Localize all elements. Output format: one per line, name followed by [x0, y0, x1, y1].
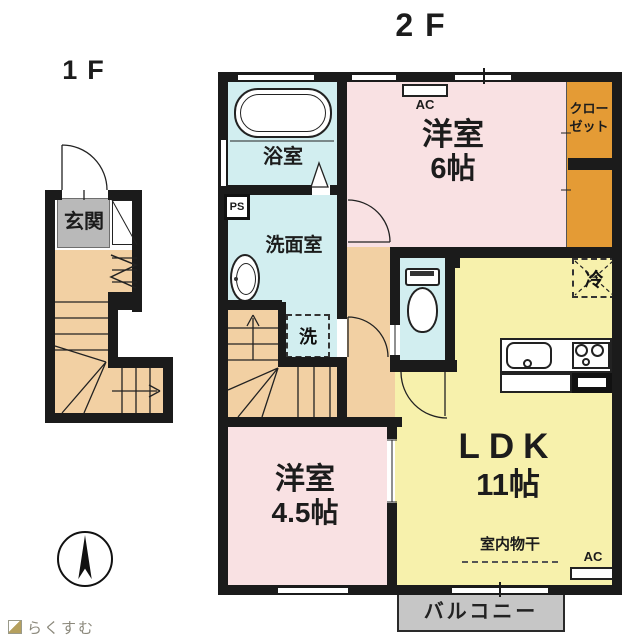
room-west6-size: 6帖: [398, 154, 508, 186]
kitchen-faucet: [523, 359, 532, 368]
closet-label-line2: ゼット: [564, 120, 614, 134]
wall: [337, 72, 347, 427]
refrigerator-label: 冷: [584, 265, 603, 292]
north-arrow-icon: [73, 535, 97, 583]
washbasin-faucet-dot: [234, 277, 238, 281]
wall: [568, 158, 616, 170]
washer-space: 洗: [286, 314, 330, 358]
bathtub: [234, 88, 332, 138]
wall: [397, 360, 457, 372]
wall: [449, 258, 460, 268]
washer-label: 洗: [299, 323, 317, 349]
toilet-bowl: [407, 287, 438, 333]
ac-unit-top: [402, 84, 448, 97]
washbasin-inner: [236, 263, 256, 295]
wall: [218, 417, 402, 427]
stove-burner-left: [575, 344, 588, 357]
ac-unit-bottom: [570, 567, 616, 580]
hall-1f-b: [55, 302, 108, 413]
wall: [278, 357, 347, 367]
window: [238, 73, 314, 82]
closet-label-line1: クロー: [566, 102, 612, 116]
logo-text: らくすむ: [27, 617, 95, 638]
room-west45-name: 洋室: [243, 463, 367, 496]
entrance-label: 玄関: [58, 211, 110, 233]
room-west45-size: 4.5帖: [238, 498, 372, 529]
window-tick: [499, 582, 501, 597]
ldk-size: 11帖: [428, 468, 588, 502]
stove-burner-small: [582, 358, 590, 366]
stove-burner-right: [591, 344, 604, 357]
wall: [387, 427, 397, 439]
window: [278, 586, 348, 595]
entry-door-swing: [62, 145, 107, 200]
logo-icon: [8, 620, 22, 634]
wall: [45, 190, 55, 423]
wall: [390, 247, 400, 325]
ps-box: PS: [224, 194, 250, 220]
stairs-2f-area: [228, 310, 278, 417]
wall: [45, 413, 173, 423]
bath-label: 浴室: [248, 146, 318, 168]
kitchen-counter-low: [500, 373, 572, 393]
washroom-label: 洗面室: [250, 236, 338, 257]
wall: [330, 185, 347, 195]
window: [219, 140, 228, 186]
indoor-drying-line: [462, 561, 558, 563]
room-west6-name: 洋室: [398, 118, 508, 152]
window-tick: [483, 68, 485, 84]
floor-label-2f: 2F: [378, 8, 474, 43]
wall: [612, 72, 622, 595]
wall: [218, 300, 282, 310]
hall-1f-c: [108, 368, 163, 413]
bathtub-inner: [240, 94, 326, 132]
ac-label-bottom: AC: [570, 550, 616, 564]
toilet-door: [390, 325, 400, 355]
window: [352, 73, 396, 82]
wall: [387, 503, 397, 595]
ps-label: PS: [230, 201, 245, 213]
floor-label-1f: 1F: [50, 56, 126, 86]
logo: らくすむ: [8, 617, 95, 637]
wall: [392, 247, 622, 258]
toilet-tank-lid: [410, 271, 434, 276]
balcony-label: バルコニー: [399, 601, 563, 623]
compass: [57, 531, 113, 587]
washroom-door-opening: [337, 319, 347, 357]
ldk-name: LDK: [428, 428, 588, 467]
kitchen-cabinet-slit: [578, 378, 606, 387]
ac-label-top: AC: [402, 98, 448, 112]
stairs-2f-area-lower: [278, 367, 337, 417]
indoor-drying-label: 室内物干: [460, 537, 560, 554]
refrigerator-space: 冷: [572, 258, 616, 298]
wall: [278, 302, 286, 360]
floor-plan-canvas: 冷 洗: [0, 0, 640, 640]
